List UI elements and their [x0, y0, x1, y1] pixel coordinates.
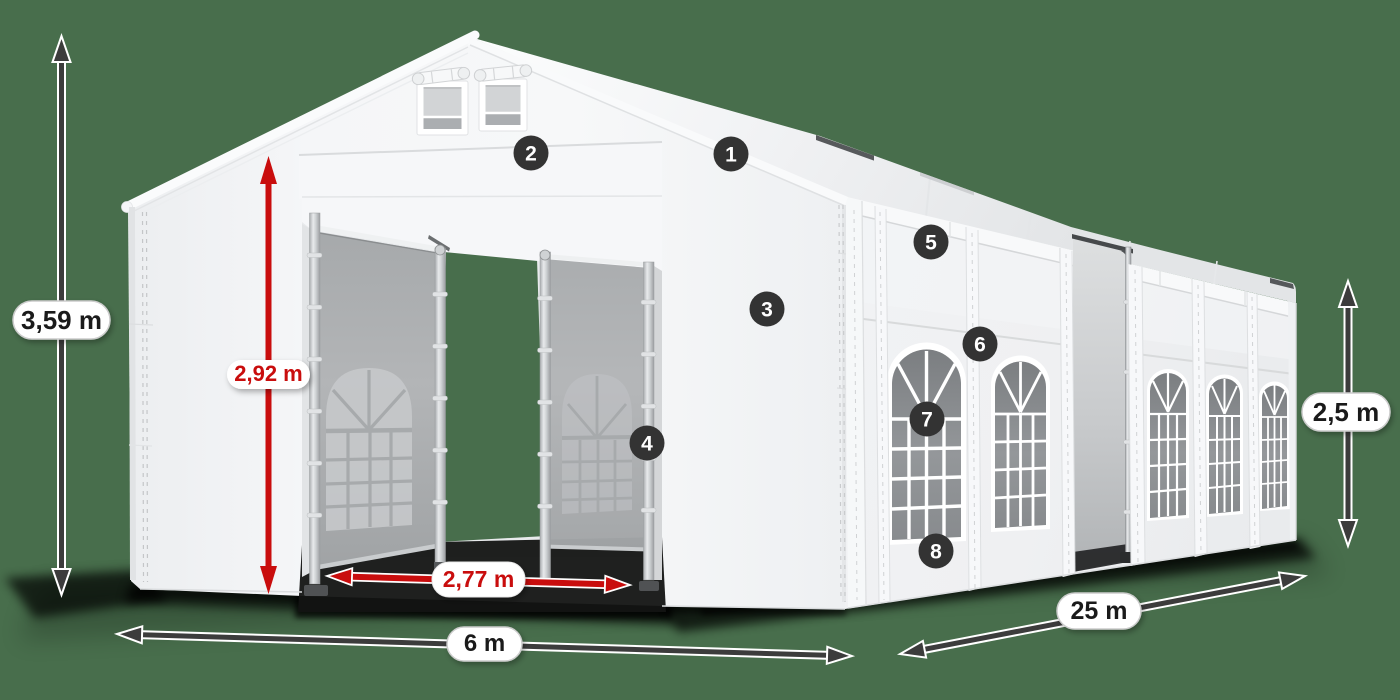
svg-text:2: 2	[525, 143, 537, 166]
svg-text:5: 5	[925, 232, 937, 255]
svg-text:1: 1	[725, 144, 737, 167]
svg-text:2,92 m: 2,92 m	[234, 361, 303, 386]
svg-text:2,5 m: 2,5 m	[1313, 397, 1380, 427]
svg-text:7: 7	[921, 409, 933, 432]
svg-text:4: 4	[641, 433, 653, 456]
svg-text:2,77 m: 2,77 m	[443, 566, 515, 592]
svg-text:3: 3	[761, 299, 773, 322]
svg-text:25 m: 25 m	[1071, 597, 1128, 625]
svg-text:6 m: 6 m	[464, 630, 505, 657]
svg-text:6: 6	[974, 334, 986, 357]
svg-text:3,59 m: 3,59 m	[21, 305, 102, 335]
svg-text:8: 8	[930, 541, 942, 564]
